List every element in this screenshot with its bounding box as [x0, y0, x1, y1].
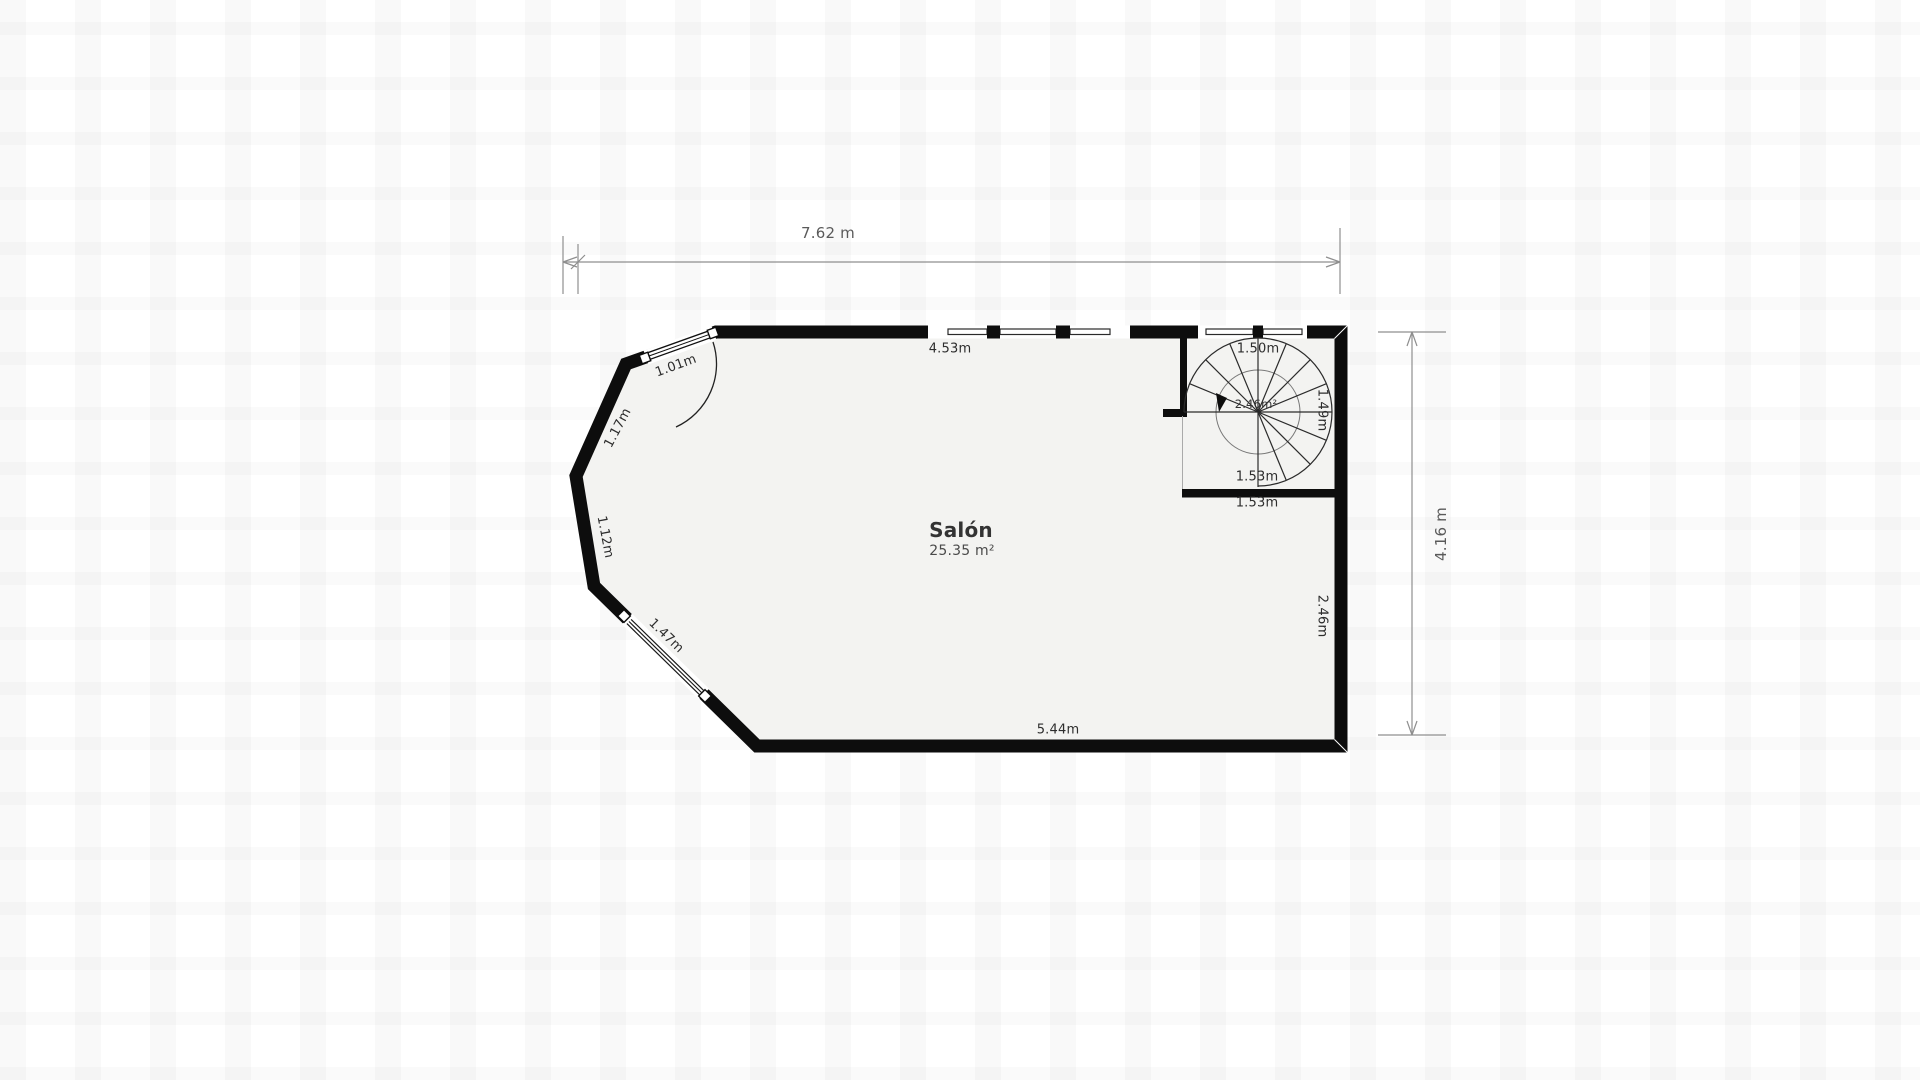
top-window: [928, 326, 1130, 339]
dimension-width-label: 7.62 m: [801, 224, 855, 242]
stair-label-outer-width: 1.53m: [1236, 496, 1279, 511]
wall-label-top-window: 4.53m: [929, 342, 972, 357]
room-name: Salón: [929, 518, 993, 542]
stair-label-right-side: 1.49m: [1315, 389, 1330, 432]
floorplan-canvas: 7.62 m 4.16 m 4.53m 1.50m 1.49m 1.53m 1.…: [0, 0, 1920, 1080]
wall-label-right-lower: 2.46m: [1315, 595, 1330, 638]
wall-label-bottom: 5.44m: [1037, 723, 1080, 738]
stair-area-label: 2.46m²: [1235, 397, 1278, 411]
stair-window: [1198, 326, 1307, 339]
room-area: 25.35 m²: [929, 543, 994, 559]
dimension-height-label: 4.16 m: [1432, 507, 1450, 561]
stair-label-top-window: 1.50m: [1237, 342, 1280, 357]
stair-label-inner-width: 1.53m: [1236, 470, 1279, 485]
